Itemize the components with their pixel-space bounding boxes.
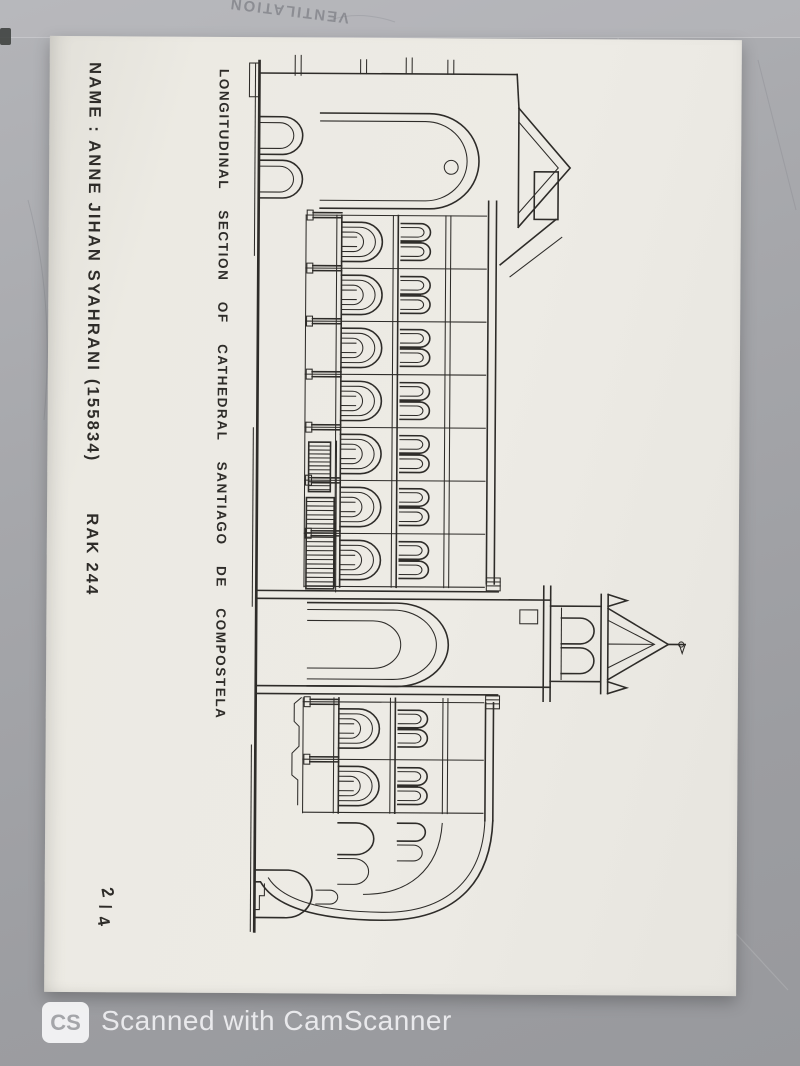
background-upper-sheet-edge [0, 0, 800, 38]
camscanner-watermark: CS Scanned with CamScanner [0, 998, 800, 1066]
student-name-line: NAME : ANNE JIHAN SYAHRANI (155834) RAK … [79, 62, 103, 962]
camscanner-watermark-text: Scanned with CamScanner [101, 1005, 452, 1037]
landscape-content: LONGITUDINAL SECTION OF CATHEDRAL SANTIA… [44, 36, 740, 990]
page-number-denominator: 4 [93, 915, 113, 929]
paper-sheet: LONGITUDINAL SECTION OF CATHEDRAL SANTIA… [44, 36, 742, 996]
page-number-slash: / [95, 903, 115, 912]
page-number: 2 / 4 [92, 887, 118, 928]
scan-edge-artifact [0, 28, 11, 45]
scanned-page: { "background": { "faint_text": "VENTILA… [0, 0, 800, 1066]
student-name: NAME : ANNE JIHAN SYAHRANI (155834) [83, 62, 103, 462]
course-code: RAK 244 [83, 513, 102, 596]
page-number-numerator: 2 [97, 886, 117, 900]
cathedral-section-drawing [217, 51, 698, 956]
camscanner-logo-icon: CS [42, 1002, 89, 1043]
